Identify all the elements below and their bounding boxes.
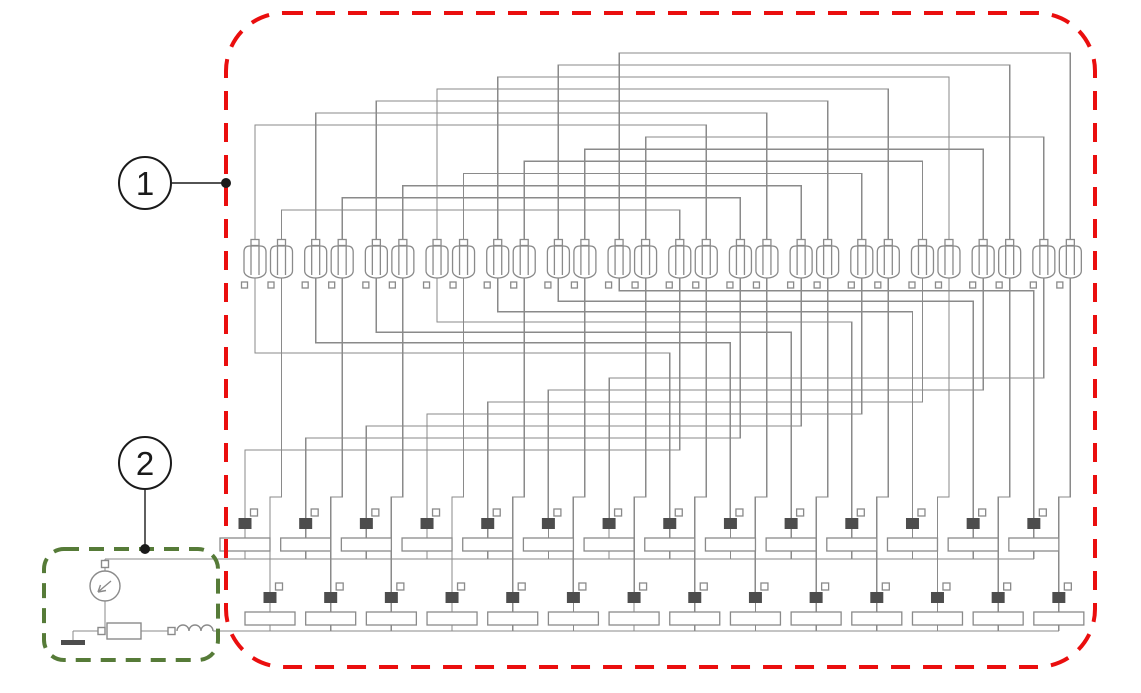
cell-bar[interactable]	[730, 612, 780, 625]
wire[interactable]	[755, 277, 767, 592]
cell-bar[interactable]	[766, 538, 816, 551]
terminal-block[interactable]	[506, 592, 519, 603]
port-marker[interactable]	[450, 282, 456, 288]
port-marker[interactable]	[268, 282, 274, 288]
resistor-symbol[interactable]	[107, 623, 141, 639]
schematic-drawing	[0, 0, 1141, 693]
winding-body[interactable]	[513, 246, 535, 278]
port-marker[interactable]	[168, 628, 175, 635]
port-marker[interactable]	[545, 282, 551, 288]
winding-symbol[interactable]	[363, 240, 388, 289]
callout-1-label: 1	[136, 167, 154, 200]
port-marker[interactable]	[979, 509, 986, 516]
terminal-block[interactable]	[870, 592, 883, 603]
winding-body[interactable]	[331, 246, 353, 278]
port-marker[interactable]	[242, 282, 248, 288]
port-marker[interactable]	[98, 628, 105, 635]
winding-body[interactable]	[790, 246, 812, 278]
wire[interactable]	[998, 277, 1010, 592]
port-marker[interactable]	[424, 282, 430, 288]
port-marker[interactable]	[875, 282, 881, 288]
wire[interactable]	[366, 277, 801, 518]
port-marker[interactable]	[727, 282, 733, 288]
winding-symbol[interactable]	[545, 240, 570, 289]
winding-symbol[interactable]	[329, 240, 354, 289]
winding-top-tab	[797, 240, 805, 246]
cell-bar[interactable]	[912, 612, 962, 625]
port-marker[interactable]	[822, 583, 829, 590]
winding-top-tab	[372, 240, 380, 246]
cell-bar[interactable]	[523, 538, 573, 551]
winding-symbol[interactable]	[970, 240, 995, 289]
cell-bar[interactable]	[948, 538, 998, 551]
winding-body[interactable]	[635, 246, 657, 278]
terminal-block[interactable]	[603, 518, 616, 529]
port-marker[interactable]	[511, 282, 517, 288]
port-marker[interactable]	[1057, 282, 1063, 288]
callout-2-dot	[140, 544, 150, 554]
winding-top-tab	[858, 240, 866, 246]
wire[interactable]	[255, 125, 706, 240]
cell-bar[interactable]	[973, 612, 1023, 625]
terminal-block[interactable]	[299, 518, 312, 529]
terminal-block[interactable]	[663, 518, 676, 529]
cell-bar[interactable]	[887, 538, 937, 551]
winding-top-tab	[433, 240, 441, 246]
wire[interactable]	[464, 173, 862, 240]
wire[interactable]	[609, 277, 1044, 518]
winding-top-tab	[642, 240, 650, 246]
port-marker[interactable]	[336, 583, 343, 590]
cell-bar[interactable]	[341, 538, 391, 551]
cell-bar[interactable]	[306, 612, 356, 625]
port-marker[interactable]	[372, 509, 379, 516]
wire[interactable]	[548, 277, 983, 518]
callout-2-label: 2	[136, 447, 154, 480]
winding-symbol[interactable]	[848, 240, 873, 289]
port-marker[interactable]	[251, 509, 258, 516]
port-marker[interactable]	[797, 509, 804, 516]
winding-symbol[interactable]	[450, 240, 475, 289]
ground-icon[interactable]	[61, 640, 85, 645]
port-marker[interactable]	[493, 509, 500, 516]
wire[interactable]	[306, 277, 741, 518]
terminal-block[interactable]	[724, 518, 737, 529]
wire[interactable]	[376, 101, 827, 240]
port-marker[interactable]	[1004, 583, 1011, 590]
winding-body[interactable]	[305, 246, 327, 278]
port-marker[interactable]	[640, 583, 647, 590]
port-marker[interactable]	[693, 282, 699, 288]
cell-bar[interactable]	[548, 612, 598, 625]
winding-body[interactable]	[426, 246, 448, 278]
terminal-block[interactable]	[481, 518, 494, 529]
winding-symbol[interactable]	[242, 240, 267, 289]
wire[interactable]	[695, 277, 707, 592]
callout-2-badge: 2	[118, 436, 172, 490]
port-marker[interactable]	[311, 509, 318, 516]
port-marker[interactable]	[1030, 282, 1036, 288]
winding-body[interactable]	[608, 246, 630, 278]
cell-bar[interactable]	[366, 612, 416, 625]
winding-top-tab	[460, 240, 468, 246]
port-marker[interactable]	[970, 282, 976, 288]
winding-top-tab	[676, 240, 684, 246]
wire[interactable]	[558, 65, 1009, 240]
port-marker[interactable]	[918, 509, 925, 516]
port-marker[interactable]	[302, 282, 308, 288]
winding-top-tab	[824, 240, 832, 246]
winding-body[interactable]	[911, 246, 933, 278]
cell-bar[interactable]	[791, 612, 841, 625]
winding-body[interactable]	[574, 246, 596, 278]
winding-body[interactable]	[271, 246, 293, 278]
schematic-canvas: 1 2	[0, 0, 1141, 693]
winding-top-tab	[884, 240, 892, 246]
cell-bar[interactable]	[245, 612, 295, 625]
wire[interactable]	[498, 277, 913, 518]
cell-bar[interactable]	[281, 538, 331, 551]
region-1-border	[226, 13, 1095, 667]
terminal-block[interactable]	[264, 592, 277, 603]
wire[interactable]	[816, 277, 828, 592]
cell-bar[interactable]	[852, 612, 902, 625]
winding-body[interactable]	[392, 246, 414, 278]
port-marker[interactable]	[761, 583, 768, 590]
winding-symbol[interactable]	[389, 240, 414, 289]
wire[interactable]	[513, 277, 525, 592]
wire[interactable]	[634, 277, 646, 592]
terminal-block[interactable]	[1052, 592, 1065, 603]
winding-symbol[interactable]	[268, 240, 293, 289]
bottom-link-wires[interactable]	[245, 277, 1044, 518]
terminal-block[interactable]	[360, 518, 373, 529]
winding-top-tab	[581, 240, 589, 246]
port-marker[interactable]	[1064, 583, 1071, 590]
port-marker[interactable]	[996, 282, 1002, 288]
wire[interactable]	[376, 277, 791, 518]
port-marker[interactable]	[935, 282, 941, 288]
terminal-block[interactable]	[906, 518, 919, 529]
cell-bar[interactable]	[609, 612, 659, 625]
winding-top-tab	[763, 240, 771, 246]
cell-bar[interactable]	[584, 538, 634, 551]
winding-symbol[interactable]	[693, 240, 718, 289]
winding-symbol[interactable]	[606, 240, 631, 289]
winding-symbol[interactable]	[814, 240, 839, 289]
wire[interactable]	[619, 53, 1070, 240]
winding-symbol[interactable]	[511, 240, 535, 289]
cell-bar[interactable]	[1034, 612, 1084, 625]
port-marker[interactable]	[943, 583, 950, 590]
winding-top-tab	[1040, 240, 1048, 246]
port-marker[interactable]	[857, 509, 864, 516]
port-marker[interactable]	[909, 282, 915, 288]
port-marker[interactable]	[458, 583, 465, 590]
cell-bar[interactable]	[645, 538, 695, 551]
winding-body[interactable]	[877, 246, 899, 278]
port-marker[interactable]	[666, 282, 672, 288]
wire[interactable]	[646, 137, 1044, 240]
terminal-block[interactable]	[992, 592, 1005, 603]
winding-symbol[interactable]	[753, 240, 778, 289]
cell-bar[interactable]	[463, 538, 513, 551]
winding-top-tab	[554, 240, 562, 246]
wire[interactable]	[573, 277, 585, 592]
port-marker[interactable]	[753, 282, 759, 288]
winding-symbol[interactable]	[1057, 240, 1082, 289]
winding-symbol[interactable]	[996, 240, 1021, 289]
wire[interactable]	[437, 277, 852, 518]
winding-body[interactable]	[547, 246, 569, 278]
winding-top-tab	[312, 240, 320, 246]
winding-top-tab	[338, 240, 346, 246]
terminal-block[interactable]	[749, 592, 762, 603]
winding-top-tab	[251, 240, 259, 246]
winding-top-tab	[702, 240, 710, 246]
winding-top-tab	[1066, 240, 1074, 246]
port-marker[interactable]	[736, 509, 743, 516]
terminal-block[interactable]	[421, 518, 434, 529]
wire[interactable]	[1059, 277, 1071, 592]
wire[interactable]	[558, 277, 973, 518]
cell-bar[interactable]	[488, 612, 538, 625]
winding-body[interactable]	[365, 246, 387, 278]
wire[interactable]	[342, 198, 740, 240]
cell-bar[interactable]	[427, 612, 477, 625]
winding-top-tab	[1006, 240, 1014, 246]
winding-body[interactable]	[453, 246, 475, 278]
wire[interactable]	[255, 277, 670, 518]
winding-symbol[interactable]	[424, 240, 449, 289]
terminal-block[interactable]	[1027, 518, 1040, 529]
terminal-block[interactable]	[385, 592, 398, 603]
terminal-block[interactable]	[446, 592, 459, 603]
port-marker[interactable]	[276, 583, 283, 590]
terminal-block[interactable]	[810, 592, 823, 603]
winding-symbol[interactable]	[935, 240, 960, 289]
port-marker[interactable]	[788, 282, 794, 288]
port-marker[interactable]	[675, 509, 682, 516]
winding-symbol[interactable]	[909, 240, 934, 289]
port-marker[interactable]	[814, 282, 820, 288]
terminal-block[interactable]	[845, 518, 858, 529]
port-marker[interactable]	[484, 282, 490, 288]
winding-body[interactable]	[817, 246, 839, 278]
winding-symbol[interactable]	[727, 240, 752, 289]
winding-body[interactable]	[938, 246, 960, 278]
wire[interactable]	[391, 277, 403, 592]
winding-top-tab	[494, 240, 502, 246]
winding-symbol[interactable]	[632, 240, 657, 289]
wire[interactable]	[585, 149, 983, 240]
winding-symbol[interactable]	[788, 240, 813, 289]
port-marker[interactable]	[606, 282, 612, 288]
winding-top-tab	[918, 240, 926, 246]
wire[interactable]	[437, 89, 888, 240]
port-marker[interactable]	[433, 509, 440, 516]
callout-1-dot	[221, 178, 231, 188]
source-branch[interactable]	[61, 559, 213, 645]
port-marker[interactable]	[848, 282, 854, 288]
wire[interactable]	[403, 186, 801, 240]
winding-body[interactable]	[972, 246, 994, 278]
winding-top-tab	[278, 240, 286, 246]
winding-top-tab	[615, 240, 623, 246]
terminal-block[interactable]	[785, 518, 798, 529]
winding-symbol[interactable]	[666, 240, 691, 289]
wire[interactable]	[877, 277, 889, 592]
winding-top-tab	[979, 240, 987, 246]
port-marker[interactable]	[397, 583, 404, 590]
winding-body[interactable]	[756, 246, 778, 278]
port-marker[interactable]	[700, 583, 707, 590]
terminal-block[interactable]	[931, 592, 944, 603]
wire[interactable]	[452, 277, 464, 592]
terminal-block[interactable]	[324, 592, 337, 603]
terminal-block[interactable]	[567, 592, 580, 603]
cell-bar[interactable]	[1009, 538, 1059, 551]
port-marker[interactable]	[882, 583, 889, 590]
port-marker[interactable]	[389, 282, 395, 288]
terminal-block[interactable]	[542, 518, 555, 529]
wire[interactable]	[245, 277, 680, 518]
wire[interactable]	[937, 277, 949, 592]
wire[interactable]	[270, 277, 282, 592]
winding-body[interactable]	[1033, 246, 1055, 278]
winding-symbol[interactable]	[571, 240, 596, 289]
winding-top-tab	[399, 240, 407, 246]
winding-top-tab	[736, 240, 744, 246]
cell-bar[interactable]	[670, 612, 720, 625]
winding-body[interactable]	[851, 246, 873, 278]
winding-top-tab	[520, 240, 528, 246]
port-marker[interactable]	[579, 583, 586, 590]
port-marker[interactable]	[571, 282, 577, 288]
terminal-block[interactable]	[688, 592, 701, 603]
wire[interactable]	[488, 277, 923, 518]
wire[interactable]	[619, 277, 1034, 518]
terminal-block[interactable]	[628, 592, 641, 603]
port-marker[interactable]	[1039, 509, 1046, 516]
top-link-wires[interactable]	[255, 53, 1070, 240]
wire[interactable]	[316, 113, 767, 240]
wire[interactable]	[316, 277, 731, 518]
winding-symbol[interactable]	[1030, 240, 1055, 289]
winding-symbol[interactable]	[302, 240, 327, 289]
cell-bar[interactable]	[705, 538, 755, 551]
winding-body[interactable]	[1059, 246, 1081, 278]
port-marker[interactable]	[554, 509, 561, 516]
callout-leaders	[140, 178, 231, 554]
port-marker[interactable]	[518, 583, 525, 590]
wire[interactable]	[331, 277, 343, 592]
winding-body[interactable]	[244, 246, 266, 278]
winding-symbol[interactable]	[484, 240, 509, 289]
terminal-block[interactable]	[239, 518, 252, 529]
callout-1-badge: 1	[118, 156, 172, 210]
port-marker[interactable]	[363, 282, 369, 288]
winding-symbol[interactable]	[875, 240, 900, 289]
cell-bar[interactable]	[402, 538, 452, 551]
winding-body[interactable]	[695, 246, 717, 278]
winding-body[interactable]	[729, 246, 751, 278]
winding-body[interactable]	[999, 246, 1021, 278]
port-marker[interactable]	[615, 509, 622, 516]
winding-body[interactable]	[669, 246, 691, 278]
terminal-block[interactable]	[967, 518, 980, 529]
port-marker[interactable]	[632, 282, 638, 288]
port-marker[interactable]	[102, 561, 109, 568]
inductor-symbol[interactable]	[177, 625, 213, 631]
wire[interactable]	[282, 210, 680, 240]
wire[interactable]	[427, 277, 862, 518]
winding-top-tab	[945, 240, 953, 246]
winding-body[interactable]	[487, 246, 509, 278]
port-marker[interactable]	[329, 282, 335, 288]
cell-bar[interactable]	[827, 538, 877, 551]
